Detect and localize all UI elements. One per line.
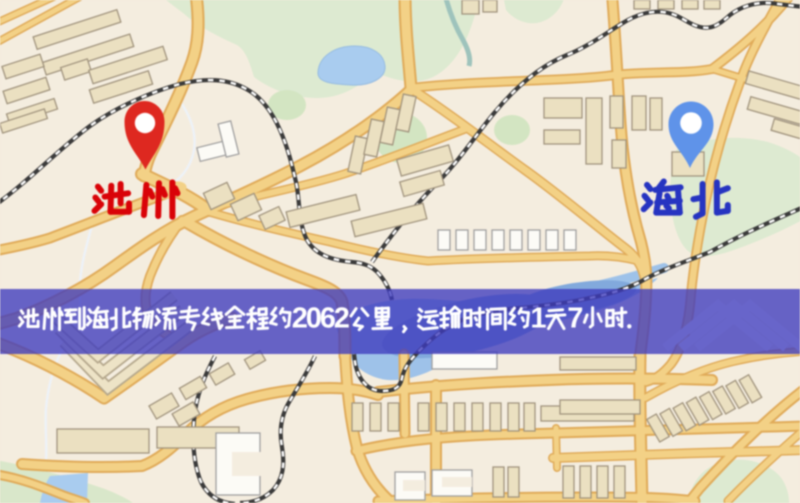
svg-text:7: 7 (567, 302, 583, 334)
svg-text:1: 1 (530, 302, 546, 334)
svg-text:2: 2 (334, 302, 350, 334)
